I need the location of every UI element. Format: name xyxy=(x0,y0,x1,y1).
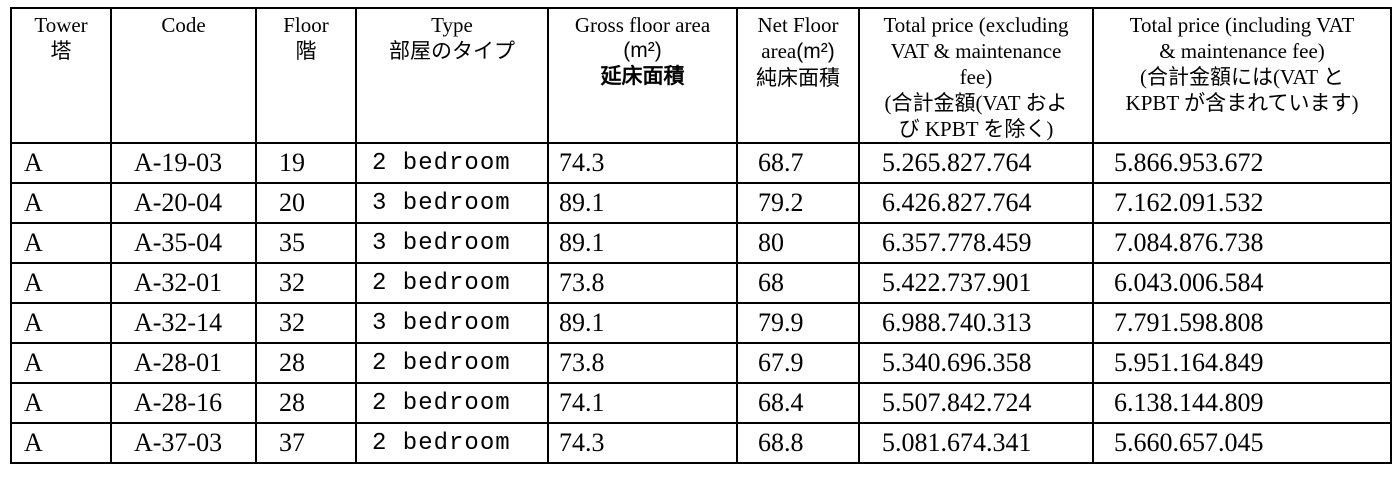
cell-price-incl: 7.791.598.808 xyxy=(1093,303,1391,343)
col-header-price-incl-en2: & maintenance fee) xyxy=(1098,38,1386,64)
cell-tower: A xyxy=(11,303,111,343)
col-header-type-ja: 部屋のタイプ xyxy=(361,38,543,64)
header-row: Tower 塔 Code Floor 階 Type 部屋のタイプ Gross f… xyxy=(11,8,1391,143)
cell-code: A-37-03 xyxy=(111,423,256,463)
col-header-net-area-ja: 純床面積 xyxy=(742,65,854,91)
cell-gross-area: 73.8 xyxy=(548,263,737,303)
cell-price-incl: 6.043.006.584 xyxy=(1093,263,1391,303)
cell-gross-area: 74.1 xyxy=(548,383,737,423)
table-row: AA-32-14323 bedroom89.179.96.988.740.313… xyxy=(11,303,1391,343)
cell-net-area: 80 xyxy=(737,223,859,263)
col-header-gross-area: Gross floor area (m²) 延床面積 xyxy=(548,8,737,143)
col-header-code-en: Code xyxy=(116,12,251,38)
table-row: AA-19-03192 bedroom74.368.75.265.827.764… xyxy=(11,143,1391,183)
col-header-net-area-unit: (m²) xyxy=(796,40,834,63)
col-header-gross-area-unit: (m²) xyxy=(553,38,732,64)
cell-floor: 19 xyxy=(256,143,356,183)
cell-floor: 28 xyxy=(256,383,356,423)
cell-price-incl: 6.138.144.809 xyxy=(1093,383,1391,423)
col-header-tower-en: Tower xyxy=(16,12,106,38)
cell-gross-area: 89.1 xyxy=(548,223,737,263)
cell-gross-area: 89.1 xyxy=(548,303,737,343)
col-header-net-area-en: Net Floor xyxy=(742,12,854,38)
table-header: Tower 塔 Code Floor 階 Type 部屋のタイプ Gross f… xyxy=(11,8,1391,143)
cell-floor: 32 xyxy=(256,303,356,343)
cell-tower: A xyxy=(11,383,111,423)
cell-gross-area: 89.1 xyxy=(548,183,737,223)
col-header-price-excl-en3: fee) xyxy=(864,64,1088,90)
col-header-price-excl-en1: Total price (excluding xyxy=(864,12,1088,38)
cell-code: A-19-03 xyxy=(111,143,256,183)
cell-price-excl: 5.340.696.358 xyxy=(859,343,1093,383)
cell-gross-area: 74.3 xyxy=(548,423,737,463)
cell-type: 2 bedroom xyxy=(356,143,548,183)
cell-net-area: 79.2 xyxy=(737,183,859,223)
cell-net-area: 67.9 xyxy=(737,343,859,383)
col-header-price-excl-ja2: び KPBT を除く) xyxy=(864,116,1088,142)
col-header-type: Type 部屋のタイプ xyxy=(356,8,548,143)
col-header-price-incl: Total price (including VAT & maintenance… xyxy=(1093,8,1391,143)
table-row: AA-20-04203 bedroom89.179.26.426.827.764… xyxy=(11,183,1391,223)
cell-price-incl: 5.660.657.045 xyxy=(1093,423,1391,463)
col-header-price-incl-en1: Total price (including VAT xyxy=(1098,12,1386,38)
table-row: AA-35-04353 bedroom89.1806.357.778.4597.… xyxy=(11,223,1391,263)
cell-tower: A xyxy=(11,263,111,303)
unit-price-table: Tower 塔 Code Floor 階 Type 部屋のタイプ Gross f… xyxy=(10,7,1392,464)
col-header-floor-ja: 階 xyxy=(261,38,351,64)
cell-floor: 28 xyxy=(256,343,356,383)
cell-price-incl: 5.866.953.672 xyxy=(1093,143,1391,183)
col-header-type-en: Type xyxy=(361,12,543,38)
cell-tower: A xyxy=(11,183,111,223)
cell-price-excl: 6.426.827.764 xyxy=(859,183,1093,223)
col-header-floor-en: Floor xyxy=(261,12,351,38)
col-header-floor: Floor 階 xyxy=(256,8,356,143)
col-header-gross-area-en: Gross floor area xyxy=(553,12,732,38)
col-header-gross-area-ja: 延床面積 xyxy=(553,64,732,90)
cell-gross-area: 74.3 xyxy=(548,143,737,183)
col-header-tower-ja: 塔 xyxy=(16,38,106,64)
cell-floor: 20 xyxy=(256,183,356,223)
cell-type: 2 bedroom xyxy=(356,383,548,423)
col-header-net-area: Net Floor area(m²) 純床面積 xyxy=(737,8,859,143)
cell-price-excl: 5.507.842.724 xyxy=(859,383,1093,423)
cell-code: A-32-01 xyxy=(111,263,256,303)
col-header-price-incl-ja1: (合計金額には(VAT と xyxy=(1098,64,1386,90)
cell-tower: A xyxy=(11,143,111,183)
cell-net-area: 79.9 xyxy=(737,303,859,343)
cell-type: 2 bedroom xyxy=(356,343,548,383)
cell-price-incl: 5.951.164.849 xyxy=(1093,343,1391,383)
cell-type: 3 bedroom xyxy=(356,303,548,343)
cell-price-excl: 5.265.827.764 xyxy=(859,143,1093,183)
cell-type: 2 bedroom xyxy=(356,423,548,463)
col-header-price-excl: Total price (excluding VAT & maintenance… xyxy=(859,8,1093,143)
col-header-price-excl-ja1: (合計金額(VAT およ xyxy=(864,90,1088,116)
table-row: AA-37-03372 bedroom74.368.85.081.674.341… xyxy=(11,423,1391,463)
cell-price-incl: 7.162.091.532 xyxy=(1093,183,1391,223)
cell-tower: A xyxy=(11,423,111,463)
cell-price-excl: 6.357.778.459 xyxy=(859,223,1093,263)
col-header-net-area-line2: area(m²) xyxy=(742,38,854,65)
cell-net-area: 68.7 xyxy=(737,143,859,183)
cell-code: A-20-04 xyxy=(111,183,256,223)
cell-code: A-28-16 xyxy=(111,383,256,423)
cell-price-excl: 5.081.674.341 xyxy=(859,423,1093,463)
cell-code: A-32-14 xyxy=(111,303,256,343)
cell-floor: 32 xyxy=(256,263,356,303)
col-header-tower: Tower 塔 xyxy=(11,8,111,143)
col-header-net-area-en2: area xyxy=(761,39,796,63)
cell-net-area: 68.8 xyxy=(737,423,859,463)
cell-price-excl: 6.988.740.313 xyxy=(859,303,1093,343)
table-row: AA-28-01282 bedroom73.867.95.340.696.358… xyxy=(11,343,1391,383)
cell-type: 3 bedroom xyxy=(356,223,548,263)
col-header-price-incl-ja2: KPBT が含まれています) xyxy=(1098,90,1386,116)
cell-type: 2 bedroom xyxy=(356,263,548,303)
table-body: AA-19-03192 bedroom74.368.75.265.827.764… xyxy=(11,143,1391,463)
table-row: AA-32-01322 bedroom73.8685.422.737.9016.… xyxy=(11,263,1391,303)
cell-gross-area: 73.8 xyxy=(548,343,737,383)
cell-net-area: 68.4 xyxy=(737,383,859,423)
col-header-price-excl-en2: VAT & maintenance xyxy=(864,38,1088,64)
cell-type: 3 bedroom xyxy=(356,183,548,223)
page: Tower 塔 Code Floor 階 Type 部屋のタイプ Gross f… xyxy=(0,0,1397,491)
cell-price-excl: 5.422.737.901 xyxy=(859,263,1093,303)
col-header-code: Code xyxy=(111,8,256,143)
cell-code: A-28-01 xyxy=(111,343,256,383)
cell-code: A-35-04 xyxy=(111,223,256,263)
cell-net-area: 68 xyxy=(737,263,859,303)
cell-tower: A xyxy=(11,343,111,383)
cell-price-incl: 7.084.876.738 xyxy=(1093,223,1391,263)
table-row: AA-28-16282 bedroom74.168.45.507.842.724… xyxy=(11,383,1391,423)
cell-floor: 35 xyxy=(256,223,356,263)
cell-floor: 37 xyxy=(256,423,356,463)
cell-tower: A xyxy=(11,223,111,263)
